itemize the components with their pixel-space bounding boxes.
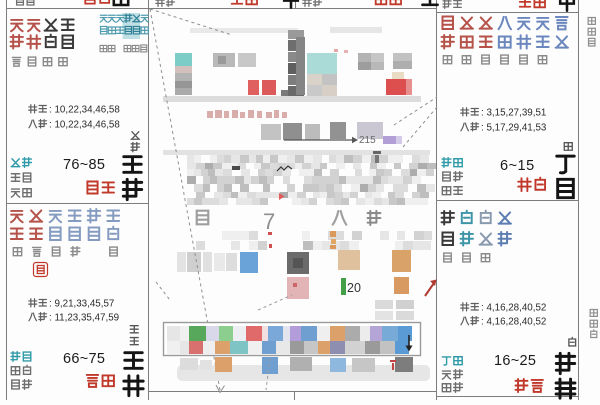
svg-text:: 5,17,29,41,53: : 5,17,29,41,53: [481, 123, 547, 134]
svg-text:215: 215: [359, 135, 376, 146]
svg-text:76~85: 76~85: [63, 157, 105, 173]
svg-text:: 3,15,27,39,51: : 3,15,27,39,51: [481, 108, 546, 119]
svg-text:: 10,22,34,46,58: : 10,22,34,46,58: [49, 105, 120, 116]
svg-text:66~75: 66~75: [63, 351, 105, 367]
svg-text:7: 7: [263, 209, 275, 234]
svg-text:: 10,22,34,46,58: : 10,22,34,46,58: [49, 120, 120, 131]
svg-text:: 11,23,35,47,59: : 11,23,35,47,59: [49, 313, 119, 324]
svg-text:16~25: 16~25: [494, 353, 536, 369]
svg-text:20: 20: [347, 281, 361, 295]
svg-text:: 9,21,33,45,57: : 9,21,33,45,57: [49, 299, 114, 310]
svg-text:: 4,16,28,40,52: : 4,16,28,40,52: [481, 317, 546, 328]
svg-text:: 4,16,28,40,52: : 4,16,28,40,52: [481, 303, 546, 314]
svg-text:6~15: 6~15: [500, 158, 535, 174]
